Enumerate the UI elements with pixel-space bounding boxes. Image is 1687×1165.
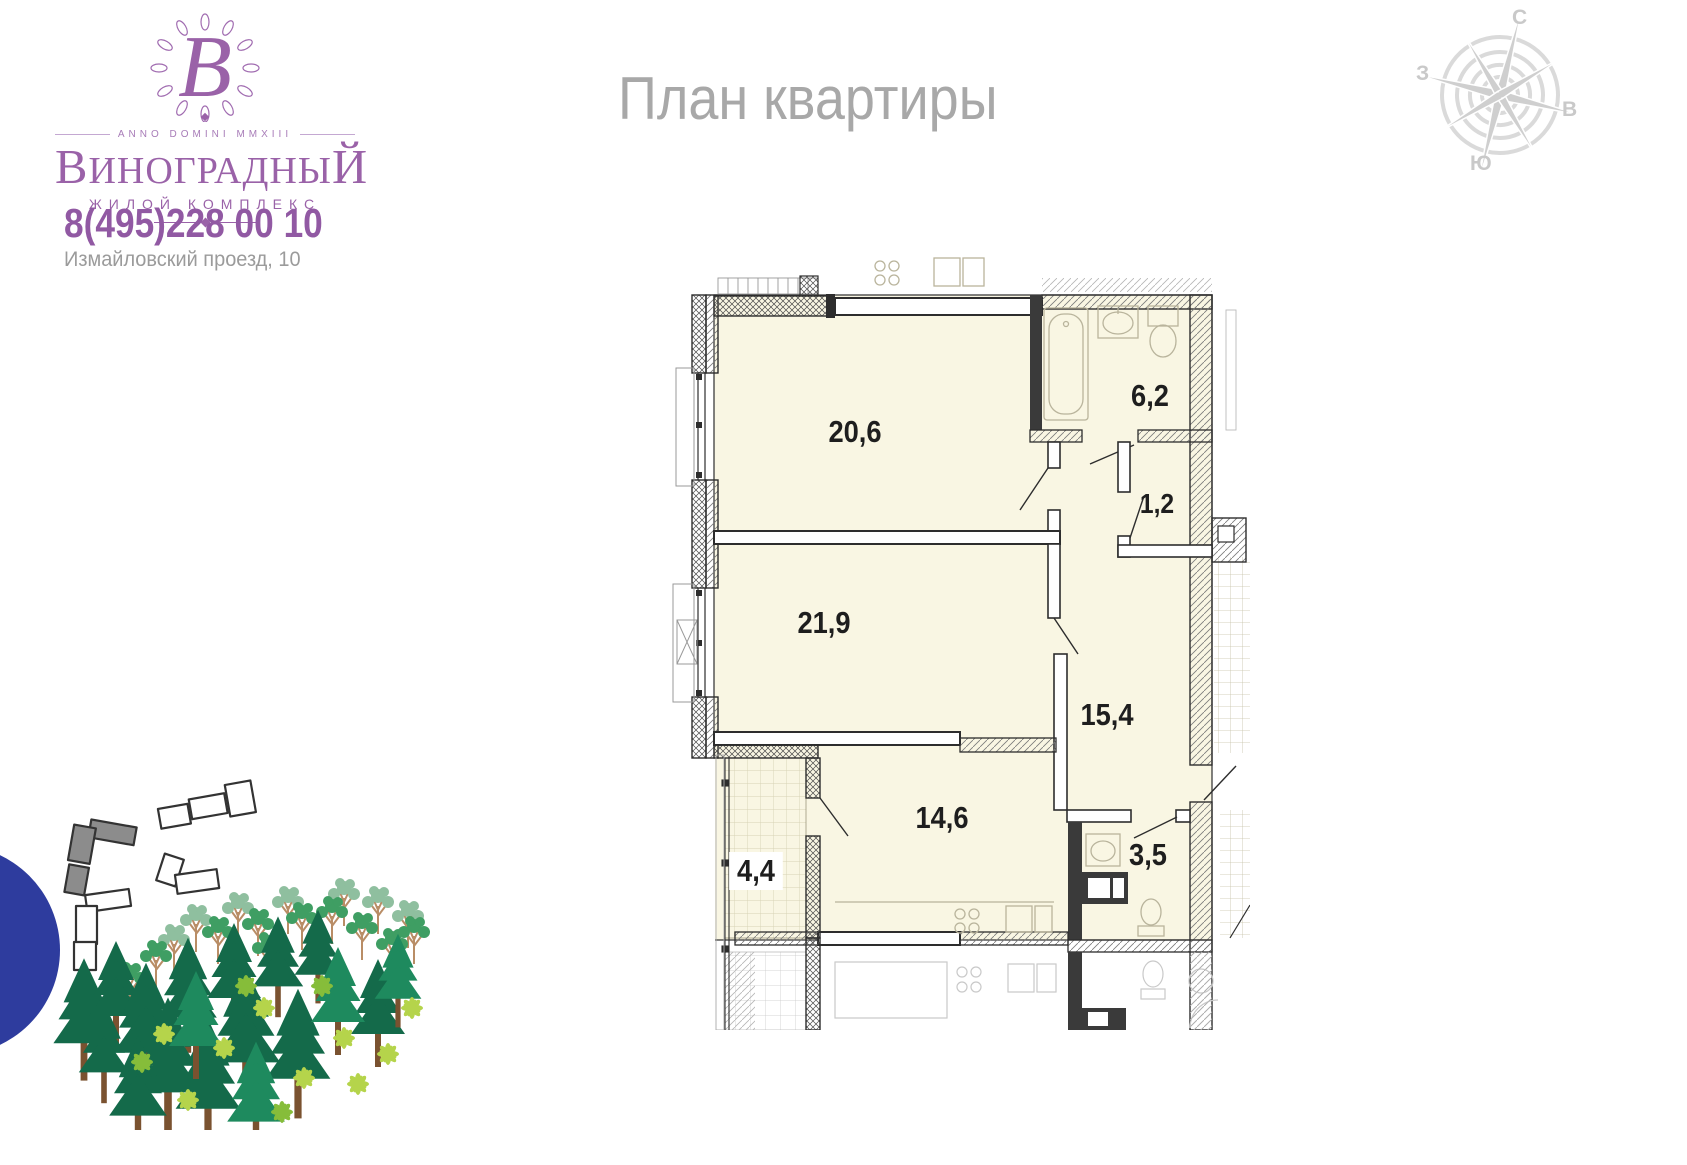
window-icon <box>673 584 705 702</box>
forest-illustration <box>46 866 436 1135</box>
room-area-hallway: 15,4 <box>1080 697 1133 733</box>
compass-west-label: З <box>1416 62 1429 86</box>
brand-name: ВИНОГРАДНЫЙ <box>55 142 355 193</box>
brand-logo: В ANNO DOMINI MMXIII ВИНОГРАДНЫЙ ЖИЛОЙ К… <box>55 4 355 226</box>
room-area-bedroom: 21,9 <box>797 605 850 641</box>
room-area-wc: 3,5 <box>1129 837 1167 873</box>
brand-name-last: Й <box>332 140 368 194</box>
stove-icon <box>875 258 984 286</box>
neighbour-unit <box>835 961 1218 1030</box>
compass-south-label: Ю <box>1470 152 1492 176</box>
brand-anno: ANNO DOMINI MMXIII <box>55 129 355 140</box>
room-area-kitchen: 14,6 <box>915 800 968 836</box>
room-area-balcony: 4,4 <box>729 852 783 890</box>
compass-east-label: В <box>1562 98 1577 122</box>
monogram-wreath-icon: В <box>125 4 285 122</box>
floor-plan-drawing <box>630 250 1250 1030</box>
compass-rose-icon <box>1390 0 1620 190</box>
brand-name-main: ВИНОГРАДНЫ <box>55 150 332 192</box>
phone-number: 8(495)228 00 10 <box>64 200 323 247</box>
compass-north-label: С <box>1512 6 1527 30</box>
monogram-letter: В <box>178 19 232 116</box>
page-title: План квартиры <box>618 64 998 133</box>
address: Измайловский проезд, 10 <box>64 248 301 272</box>
floor-plan: 20,6 21,9 14,6 15,4 6,2 3,5 4,4 1,2 <box>630 250 1250 1030</box>
room-area-living-room: 20,6 <box>828 414 881 450</box>
flyer-page: В ANNO DOMINI MMXIII ВИНОГРАДНЫЙ ЖИЛОЙ К… <box>0 0 1687 1165</box>
compass-rose: С В Ю З <box>1390 0 1620 190</box>
room-area-bathroom: 6,2 <box>1131 378 1169 414</box>
trees-icon <box>46 866 436 1130</box>
window-icon <box>676 368 705 486</box>
room-area-closet: 1,2 <box>1140 488 1174 520</box>
